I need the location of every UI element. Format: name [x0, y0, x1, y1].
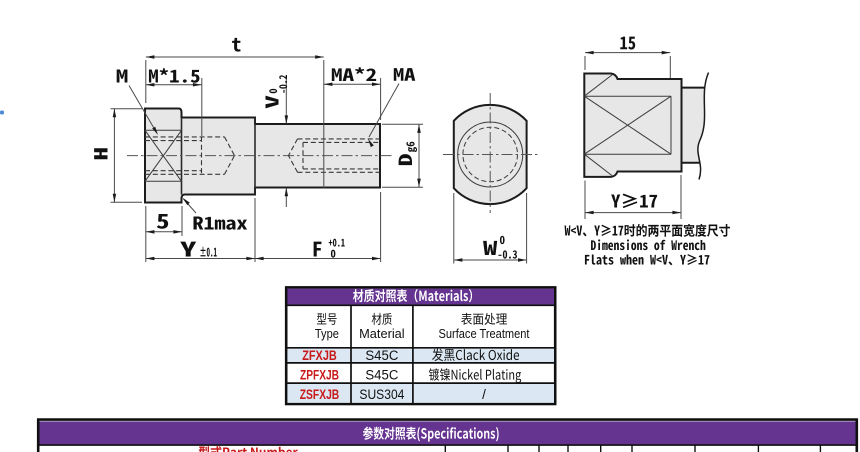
svg-text:S45C: S45C [365, 367, 398, 382]
svg-text:S45C: S45C [365, 348, 398, 363]
svg-text:Type: Type [315, 326, 339, 341]
svg-text:Material: Material [359, 326, 405, 341]
svg-text:SUS304: SUS304 [359, 387, 404, 402]
svg-text:ZSFXJB: ZSFXJB [300, 387, 340, 402]
svg-text:Surface Treatment: Surface Treatment [439, 326, 530, 341]
svg-text:ZPFXJB: ZPFXJB [300, 367, 339, 382]
svg-text:ZFXJB: ZFXJB [302, 348, 337, 363]
svg-text:/: / [482, 387, 486, 402]
